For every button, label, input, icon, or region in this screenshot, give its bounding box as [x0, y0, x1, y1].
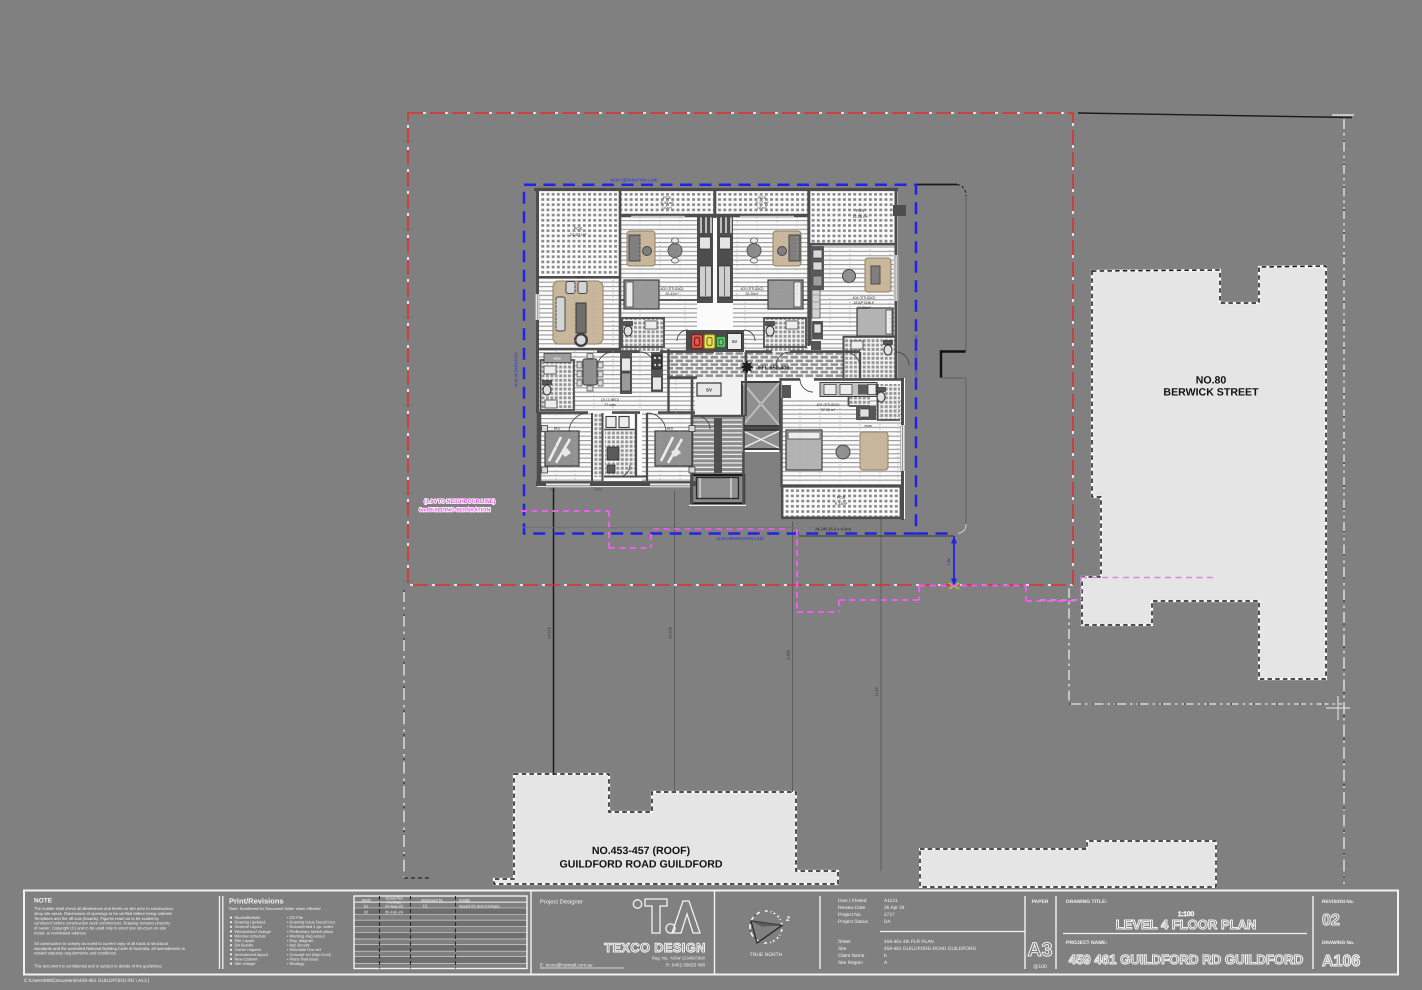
svg-text:459 461 GUILDFORD RD GUILDFORD: 459 461 GUILDFORD RD GUILDFORD — [1069, 952, 1303, 967]
svg-text:407 (STUDIO): 407 (STUDIO) — [817, 403, 840, 407]
svg-text:related statutory requirements: related statutory requirements and condi… — [34, 951, 117, 956]
svg-text:ACM SEPARATION LINE: ACM SEPARATION LINE — [716, 536, 764, 541]
svg-text:14.575: 14.575 — [548, 627, 552, 639]
svg-text:DA: DA — [884, 919, 891, 925]
svg-text:6m BUILDING SEPARATION: 6m BUILDING SEPARATION — [419, 508, 490, 514]
svg-text:OT49: OT49 — [594, 488, 602, 492]
svg-text:25M8: 25M8 — [864, 424, 872, 428]
svg-text:404 (STUDIO): 404 (STUDIO) — [853, 296, 876, 300]
svg-text:A3: A3 — [1028, 939, 1053, 961]
svg-text:NO.453-457 (ROOF): NO.453-457 (ROOF) — [592, 845, 690, 857]
svg-text:14.58 m²: 14.58 m² — [852, 214, 868, 219]
svg-text:Amdts: Amdts — [459, 898, 470, 903]
svg-text:02: 02 — [1322, 912, 1340, 929]
svg-text:21.67 m²: 21.67 m² — [570, 232, 587, 237]
svg-text:Client Name: Client Name — [838, 953, 865, 959]
svg-text:POS: POS — [663, 196, 671, 200]
svg-text:Site: Site — [838, 946, 847, 952]
svg-text:PAPER: PAPER — [1032, 899, 1049, 905]
svg-text:FFL ¥50,400: FFL ¥50,400 — [758, 366, 789, 372]
svg-text:This document is confidential: This document is confidential and is sub… — [34, 964, 163, 969]
svg-text:@100: @100 — [1033, 964, 1047, 970]
svg-text:14.575: 14.575 — [669, 627, 673, 639]
svg-text:REVISION No.: REVISION No. — [1322, 899, 1354, 905]
svg-text:26 Apr 24: 26 Apr 24 — [884, 905, 905, 911]
svg-text:402 (STUDIO): 402 (STUDIO) — [661, 287, 684, 291]
svg-text:POS: POS — [574, 226, 583, 231]
svg-text:459-461 GUILDFORD ROAD GUILDFO: 459-461 GUILDFORD ROAD GUILDFORD — [884, 946, 976, 952]
svg-text:2727: 2727 — [884, 912, 895, 918]
svg-text:ACM SEPARATION LINE: ACM SEPARATION LINE — [914, 334, 919, 380]
svg-text:6.43 m²: 6.43 m² — [661, 201, 675, 205]
svg-text:(15m²): (15m²) — [662, 206, 672, 210]
svg-text:26.80m²: 26.80m² — [857, 306, 871, 310]
svg-text:noted, at nominated address.: noted, at nominated address. — [34, 931, 87, 936]
svg-text:Reg. No.: NSW 1234567890: Reg. No.: NSW 1234567890 — [652, 956, 706, 961]
svg-text:Project Designer: Project Designer — [540, 899, 583, 906]
svg-text:05-Feb-24: 05-Feb-24 — [385, 910, 404, 915]
svg-text:24-Aug-23: 24-Aug-23 — [385, 904, 403, 909]
svg-text:01: 01 — [364, 904, 368, 909]
svg-text:WM: WM — [553, 356, 560, 361]
svg-text:ADAPTABLE: ADAPTABLE — [854, 301, 876, 305]
svg-text:459-461 4th FLR PLAN: 459-461 4th FLR PLAN — [884, 939, 934, 945]
svg-text:9.34m²: 9.34m² — [835, 501, 848, 506]
svg-text:BED: BED — [554, 427, 561, 431]
svg-text:Dwn | Khaled: Dwn | Khaled — [838, 898, 867, 904]
svg-text:NO.80: NO.80 — [1196, 375, 1227, 387]
svg-text:TEXCO DESIGN: TEXCO DESIGN — [604, 940, 706, 955]
svg-text:A1131: A1131 — [884, 898, 898, 904]
svg-text:(15m²): (15m²) — [757, 206, 767, 210]
svg-text:DRAWING No.: DRAWING No. — [1322, 940, 1354, 946]
svg-text:Sheet: Sheet — [838, 939, 851, 945]
svg-text:ACM SEPARATION: ACM SEPARATION — [514, 352, 519, 387]
svg-text:SV: SV — [706, 388, 712, 393]
svg-text:Project No.: Project No. — [838, 912, 862, 918]
svg-text:Site Region: Site Region — [838, 960, 863, 966]
svg-text:37.36 m²: 37.36 m² — [821, 408, 836, 412]
svg-text:POS: POS — [856, 208, 865, 213]
svg-text:Note: Numbered for Document fo: Note: Numbered for Document folder when … — [229, 906, 321, 911]
svg-text:ACM SEPARATION LINE: ACM SEPARATION LINE — [610, 178, 658, 183]
svg-text:b: b — [884, 953, 887, 959]
svg-text:(1.94 TO NEIGHBOUR LINE): (1.94 TO NEIGHBOUR LINE) — [424, 499, 495, 505]
svg-text:GUILDFORD ROAD GUILDFORD: GUILDFORD ROAD GUILDFORD — [559, 859, 722, 871]
svg-text:• Strategy: • Strategy — [287, 961, 304, 966]
svg-text:1.5M: 1.5M — [947, 558, 951, 566]
svg-text:A106: A106 — [1322, 953, 1360, 970]
svg-text:BED: BED — [667, 427, 674, 431]
svg-text:02: 02 — [364, 910, 368, 915]
svg-text:NOTE: NOTE — [34, 898, 53, 905]
svg-text:issued for test print/app.: issued for test print/app. — [459, 904, 501, 909]
svg-text:TRUE NORTH: TRUE NORTH — [750, 952, 783, 958]
svg-text:TC: TC — [422, 904, 427, 909]
svg-text:POS: POS — [758, 196, 766, 200]
svg-text:6.77 m²: 6.77 m² — [756, 201, 770, 205]
svg-text:403 (STUDIO): 403 (STUDIO) — [741, 287, 764, 291]
svg-text:Project Status: Project Status — [838, 919, 868, 925]
svg-text:26.42m²: 26.42m² — [665, 292, 679, 296]
svg-text:E: texco@hotmail.com.au: E: texco@hotmail.com.au — [540, 963, 593, 968]
svg-text:24.245 (5.5 x 4.5m): 24.245 (5.5 x 4.5m) — [815, 527, 852, 532]
svg-text:2: 2 — [785, 916, 790, 923]
svg-text:26.26m²: 26.26m² — [745, 292, 759, 296]
svg-text:LEVEL 4 FLOOR PLAN: LEVEL 4 FLOOR PLAN — [1116, 917, 1257, 932]
svg-text:Site change: Site change — [235, 961, 257, 966]
svg-text:C:\Users\MM\Documents\459-461: C:\Users\MM\Documents\459-461 GUILDFORD … — [24, 978, 149, 984]
svg-text:Approved by: Approved by — [421, 898, 443, 903]
svg-text:DRAWING TITLE:: DRAWING TITLE: — [1066, 899, 1107, 905]
svg-text:PCL: PCL — [550, 488, 556, 492]
svg-text:PROJECT NAME:: PROJECT NAME: — [1066, 940, 1108, 946]
svg-text:BERWICK STREET: BERWICK STREET — [1163, 387, 1259, 399]
svg-text:CBWS: CBWS — [576, 276, 585, 280]
svg-text:POS: POS — [837, 495, 846, 500]
svg-text:SV: SV — [732, 339, 738, 344]
svg-text:Amdt: Amdt — [361, 898, 371, 903]
svg-text:77 sqm: 77 sqm — [604, 403, 616, 407]
svg-text:Print/Revisions: Print/Revisions — [229, 897, 284, 906]
svg-text:P: 0451 00023 456: P: 0451 00023 456 — [666, 963, 705, 968]
svg-text:Review Date: Review Date — [838, 905, 866, 911]
svg-text:3.200: 3.200 — [787, 650, 791, 660]
svg-text:11.43: 11.43 — [875, 687, 879, 696]
svg-text:(2) (1 BED): (2) (1 BED) — [601, 398, 619, 402]
